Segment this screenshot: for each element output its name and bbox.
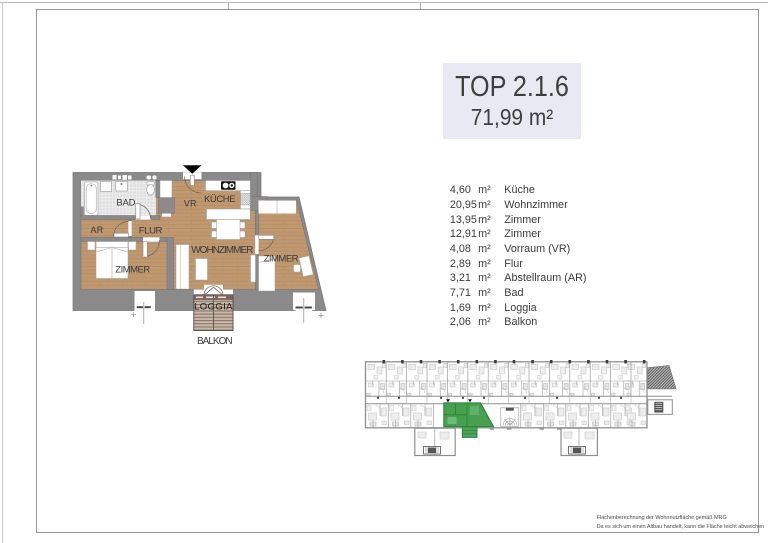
- svg-text:BAD: BAD: [116, 198, 135, 209]
- svg-text:LOGGIA: LOGGIA: [194, 302, 233, 313]
- svg-text:KÜCHE: KÜCHE: [204, 194, 235, 205]
- svg-text:WOHNZIMMER: WOHNZIMMER: [191, 245, 253, 256]
- svg-text:ZIMMER: ZIMMER: [115, 265, 150, 276]
- svg-text:AR: AR: [91, 225, 104, 235]
- svg-text:FLUR: FLUR: [139, 226, 163, 237]
- svg-text:BALKON: BALKON: [197, 336, 232, 347]
- svg-text:ZIMMER: ZIMMER: [264, 254, 299, 265]
- svg-text:VR: VR: [184, 199, 197, 209]
